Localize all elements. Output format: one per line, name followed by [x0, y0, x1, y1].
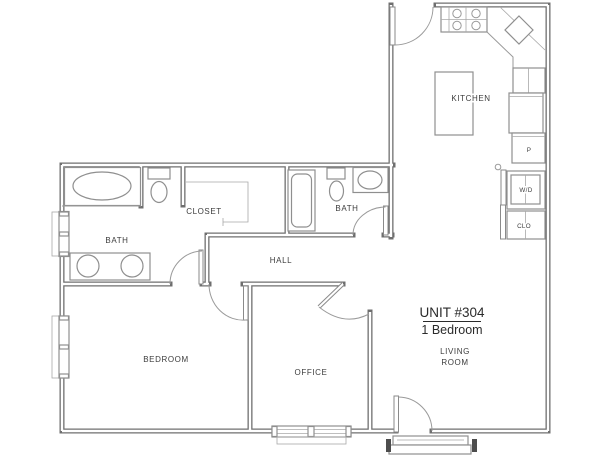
entry-door: [390, 7, 433, 45]
patio-stoop: [386, 436, 477, 454]
label-washer-dryer: W/D: [519, 187, 532, 194]
bedroom-window: [52, 316, 69, 378]
closet-shelf: [186, 182, 248, 226]
room-label-office: OFFICE: [295, 368, 328, 377]
corner-sink-icon: [505, 16, 533, 44]
coat-closet: [501, 205, 546, 239]
kitchen-island: [435, 72, 473, 135]
room-label-kitchen: KITCHEN: [451, 94, 490, 103]
sink-second-icon: [353, 168, 388, 193]
stove-icon: [441, 7, 487, 32]
bath-window: [52, 212, 69, 257]
bath-main-door: [170, 250, 203, 284]
label-pantry: P: [527, 147, 532, 154]
room-label-bath-second: BATH: [335, 204, 358, 213]
toilet-second-icon: [327, 168, 345, 201]
unit-title: UNIT #304: [419, 305, 485, 320]
bedroom-door: [209, 284, 248, 320]
vanity-double-icon: [70, 253, 150, 280]
room-label-living-2: ROOM: [441, 358, 468, 367]
office-window: [272, 426, 351, 444]
room-label-hall: HALL: [270, 256, 292, 265]
room-label-bedroom: BEDROOM: [143, 355, 189, 364]
room-label-bath-main: BATH: [105, 236, 128, 245]
floor-plan-canvas: KITCHEN BATH CLOSET BATH HALL BEDROOM OF…: [0, 0, 609, 457]
refrigerator-icon: [509, 93, 543, 133]
door-knob-icon: [495, 164, 501, 170]
room-label-closet: CLOSET: [186, 207, 222, 216]
bathtub-main-icon: [62, 168, 141, 207]
bathtub-second-icon: [288, 170, 315, 231]
unit-subtitle: 1 Bedroom: [421, 323, 482, 337]
toilet-main-icon: [148, 168, 170, 203]
office-door: [319, 284, 369, 319]
patio-door: [394, 396, 432, 432]
unit-title-block: UNIT #304 1 Bedroom: [419, 305, 485, 337]
label-coat-closet: CLO: [517, 223, 531, 230]
room-label-living-1: LIVING: [440, 347, 470, 356]
